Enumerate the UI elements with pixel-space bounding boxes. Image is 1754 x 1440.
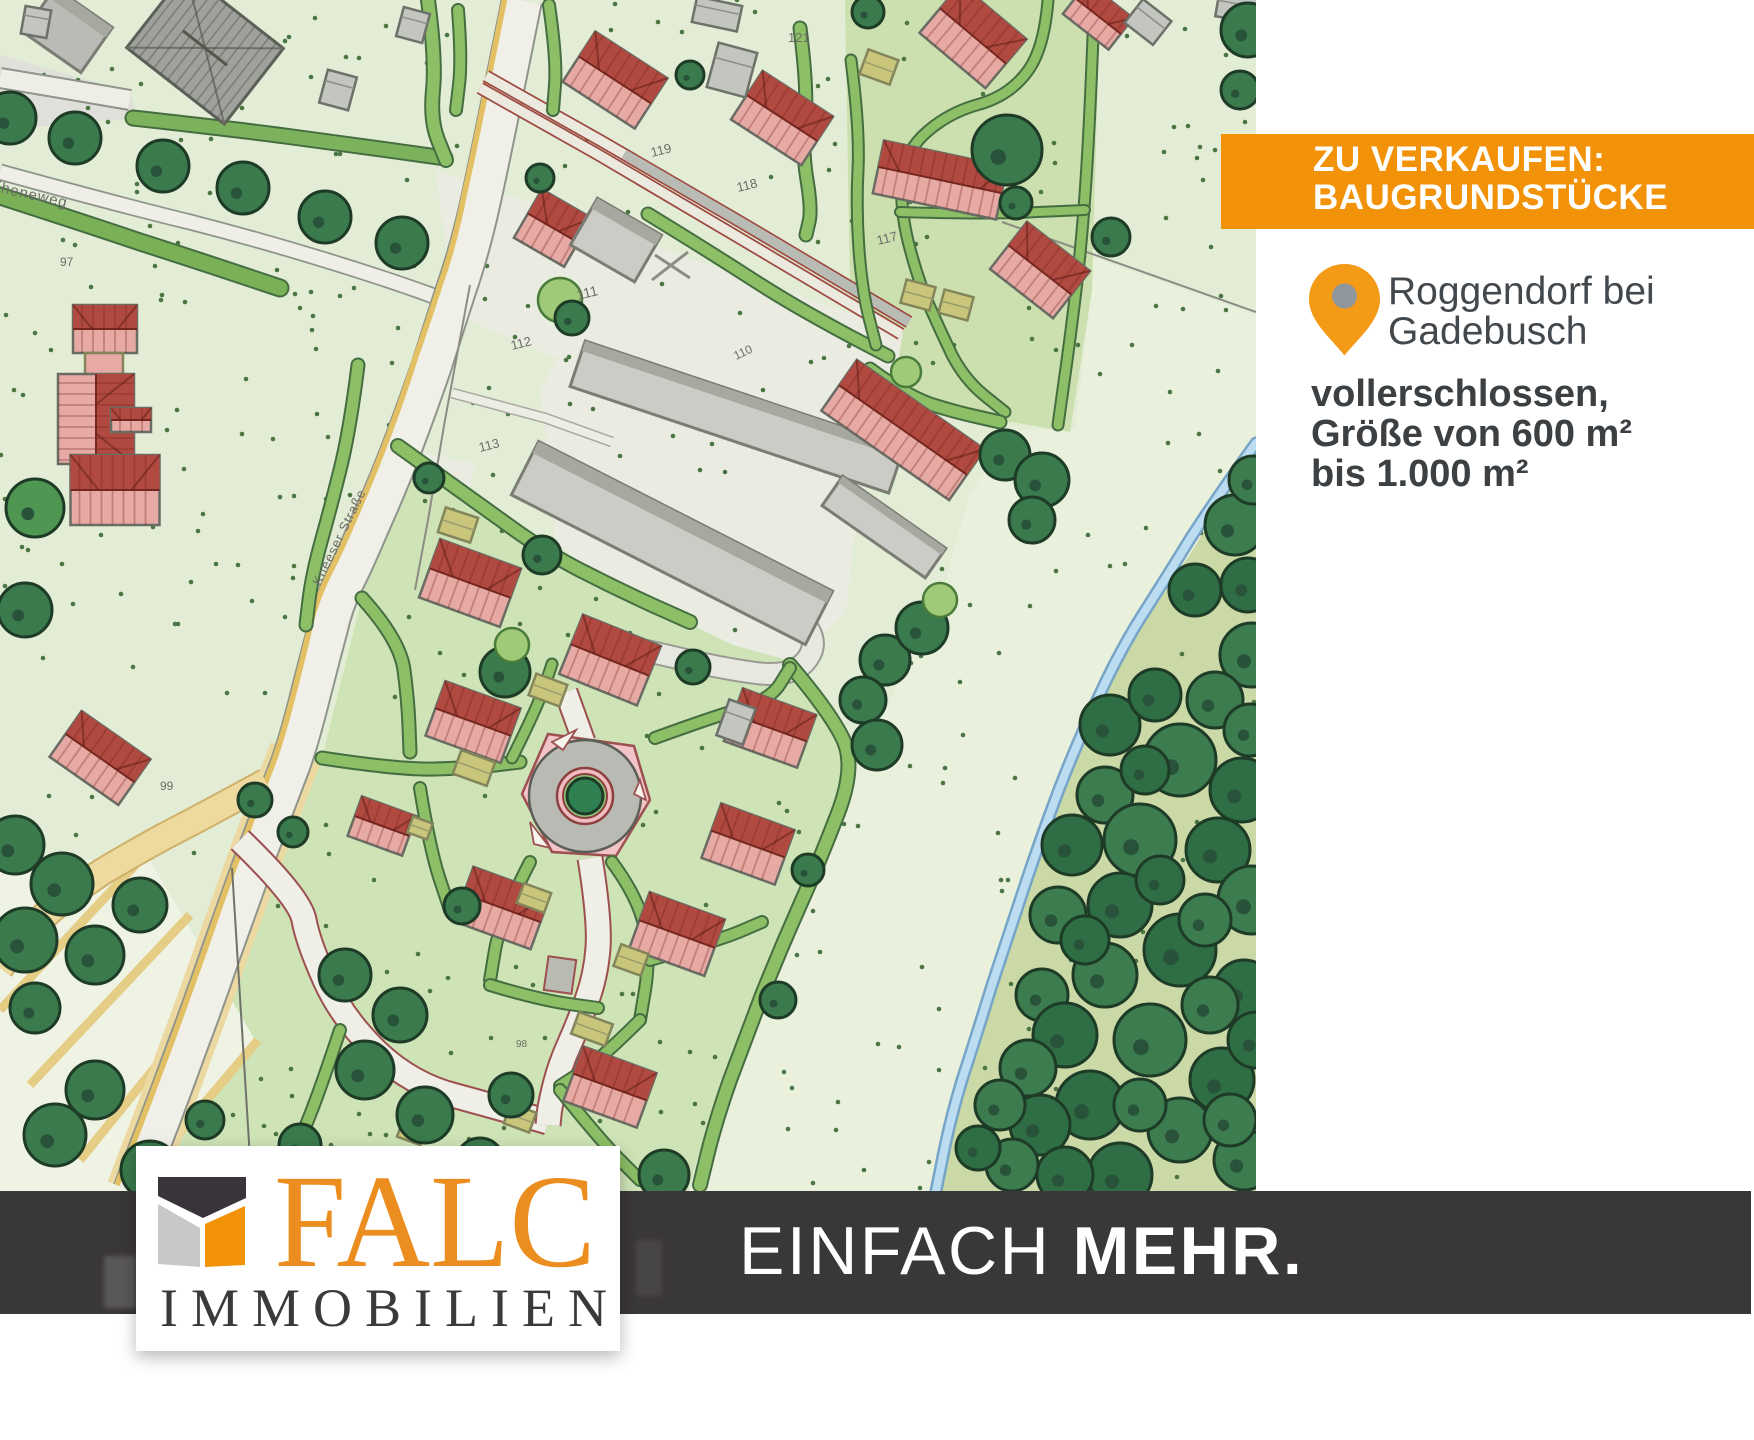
svg-text:97: 97 xyxy=(60,255,74,269)
svg-text:98: 98 xyxy=(516,1039,528,1050)
svg-text:99: 99 xyxy=(160,779,174,793)
svg-text:121: 121 xyxy=(788,30,810,45)
